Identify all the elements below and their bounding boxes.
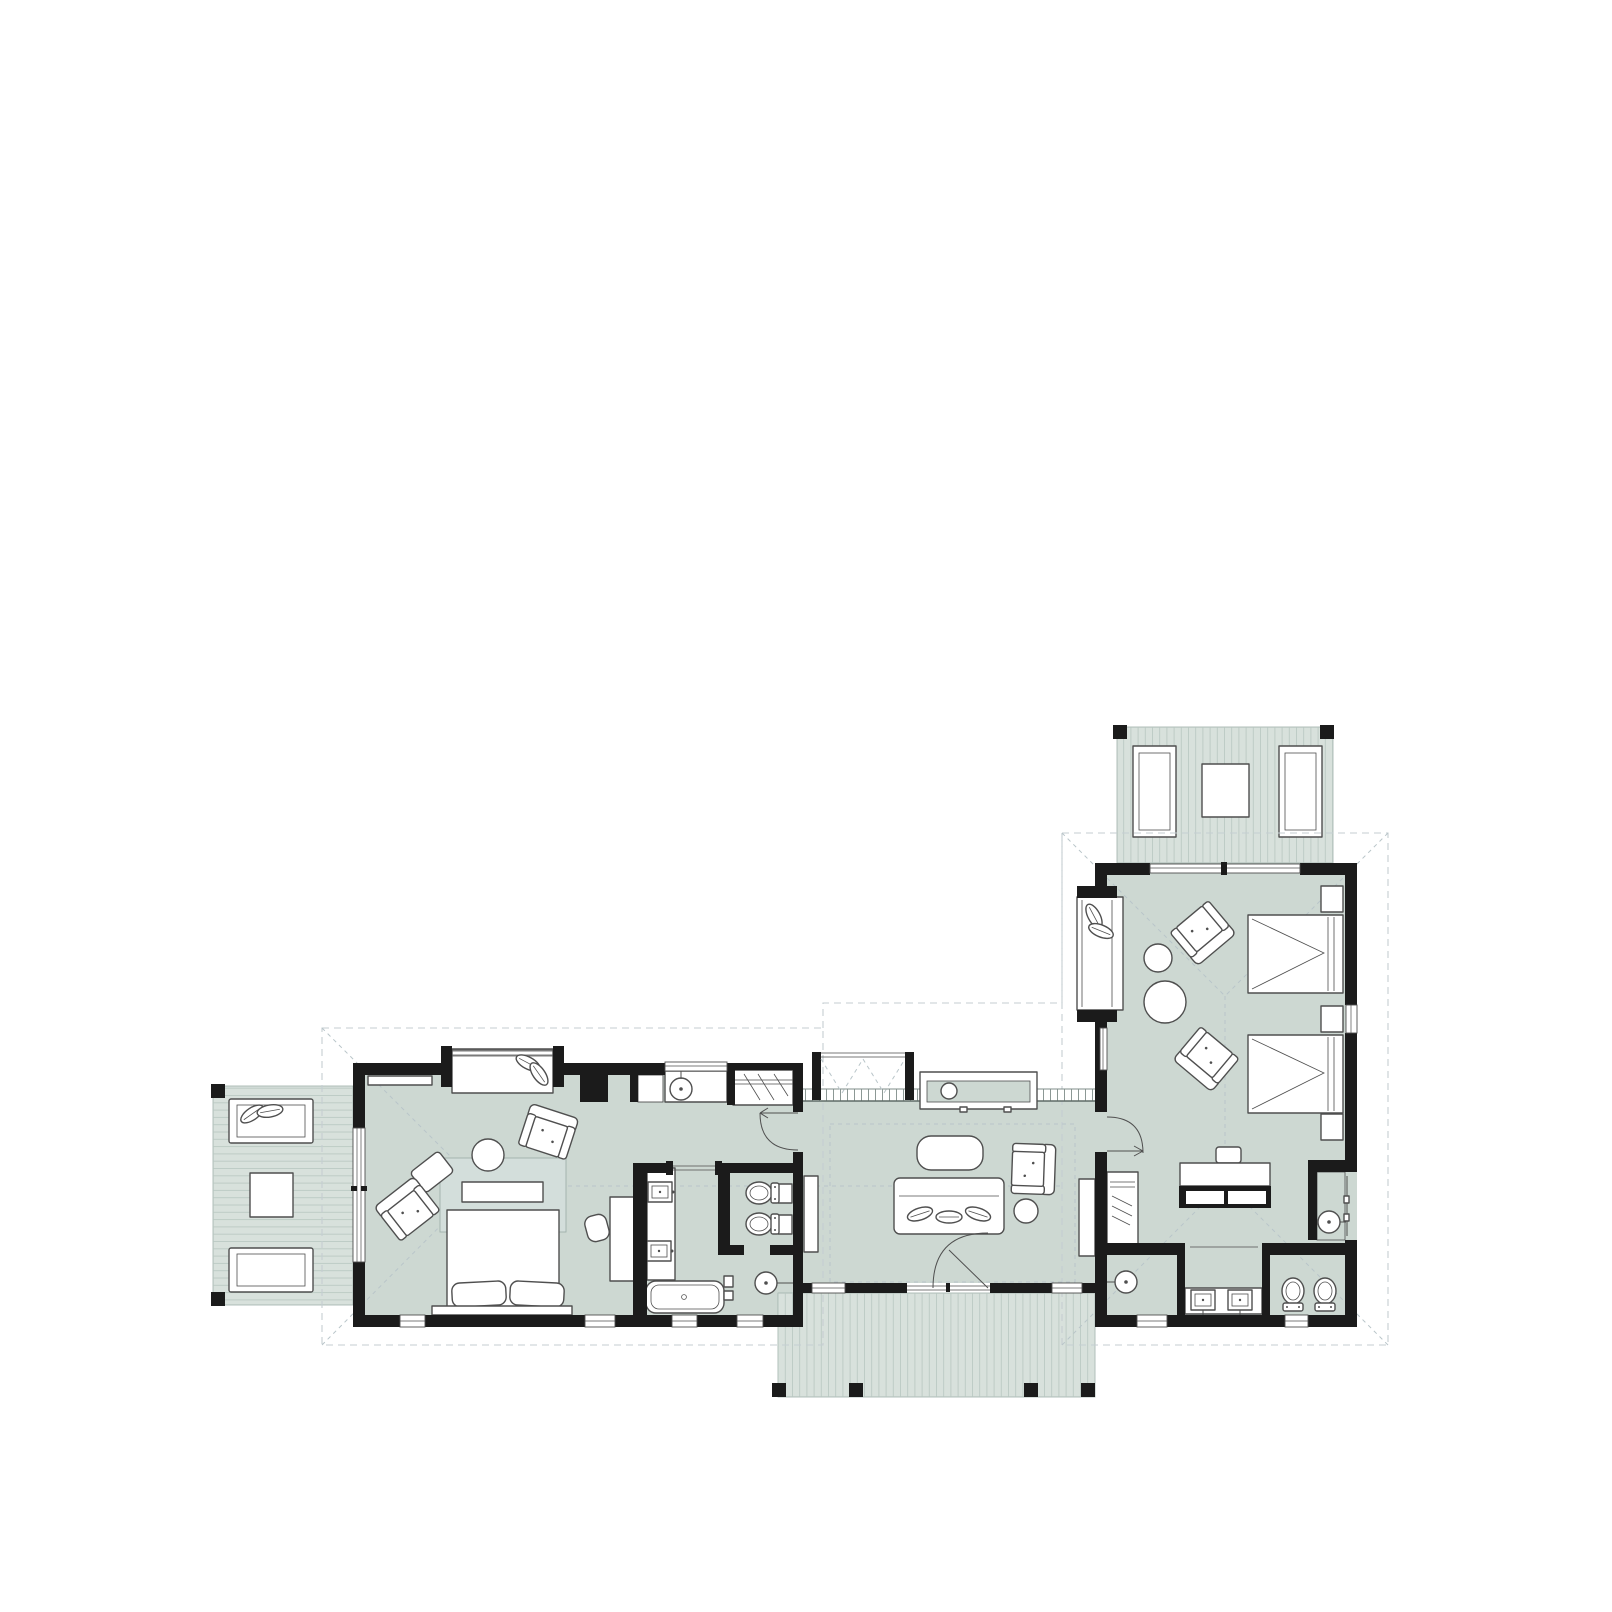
bifold-post	[812, 1052, 821, 1100]
window-seat	[804, 1176, 818, 1252]
deck-post	[772, 1383, 786, 1397]
wall-niche	[638, 1075, 663, 1102]
window	[1100, 1028, 1107, 1070]
floor-plan-drawing	[0, 0, 1612, 1612]
north-deck	[1113, 725, 1334, 863]
lounge-chair	[1133, 746, 1176, 837]
round-table	[1144, 944, 1172, 972]
twin-bed	[1248, 1035, 1343, 1113]
side-table	[1014, 1199, 1038, 1223]
nightstand	[1321, 1006, 1343, 1032]
floor-plan-page	[0, 0, 1612, 1612]
coffee-table	[917, 1136, 983, 1170]
west-deck	[211, 1084, 353, 1306]
window	[1137, 1315, 1167, 1327]
deck-post	[1320, 725, 1334, 739]
bay-post	[553, 1046, 564, 1087]
lounge-chair	[1279, 746, 1322, 837]
deck-post	[211, 1084, 225, 1098]
double-vanity	[1185, 1288, 1262, 1315]
twin-bed	[1248, 915, 1343, 993]
deck-table	[250, 1173, 293, 1217]
toilet	[1282, 1278, 1304, 1311]
lounge-chair	[229, 1248, 313, 1292]
wall-shelf	[368, 1076, 432, 1085]
toilet	[746, 1182, 792, 1204]
deck-post	[1081, 1383, 1095, 1397]
bifold-post	[905, 1052, 914, 1100]
deck-post	[849, 1383, 863, 1397]
sofa	[894, 1178, 1004, 1234]
nightstand	[1321, 1114, 1343, 1140]
window-seat-bench	[452, 1049, 553, 1093]
lounge-chair	[229, 1099, 313, 1143]
bidet	[746, 1213, 792, 1235]
window	[585, 1315, 615, 1327]
nightstand	[1321, 886, 1343, 912]
deck-post	[1113, 725, 1127, 739]
window	[1285, 1315, 1308, 1327]
washbasin-counter	[665, 1071, 727, 1102]
deck-table	[1202, 764, 1249, 817]
window	[672, 1315, 697, 1327]
outdoor-counter	[920, 1072, 1037, 1112]
window	[812, 1283, 845, 1293]
toilet	[1314, 1278, 1336, 1311]
window-seat-bench	[1077, 897, 1123, 1010]
window	[737, 1315, 763, 1327]
window	[1052, 1283, 1082, 1293]
window-seat	[1079, 1179, 1095, 1256]
window	[665, 1062, 727, 1071]
bay-post	[441, 1046, 452, 1087]
bed-platform	[432, 1306, 572, 1315]
bay-pier	[1077, 1010, 1117, 1022]
deck-post	[211, 1292, 225, 1306]
round-table	[472, 1139, 504, 1171]
closet	[733, 1070, 793, 1105]
deck-post	[1024, 1383, 1038, 1397]
wardrobe	[1107, 1172, 1138, 1245]
window	[1346, 1005, 1357, 1033]
double-bed	[432, 1210, 572, 1315]
bifold-fold-lines	[821, 1059, 905, 1093]
armchair	[1011, 1143, 1056, 1194]
double-vanity	[647, 1168, 675, 1280]
foot-bench	[462, 1182, 543, 1202]
window	[400, 1315, 425, 1327]
window	[1150, 862, 1300, 875]
window	[351, 1128, 367, 1262]
bay-pier	[1077, 886, 1117, 898]
round-table	[1144, 981, 1186, 1023]
